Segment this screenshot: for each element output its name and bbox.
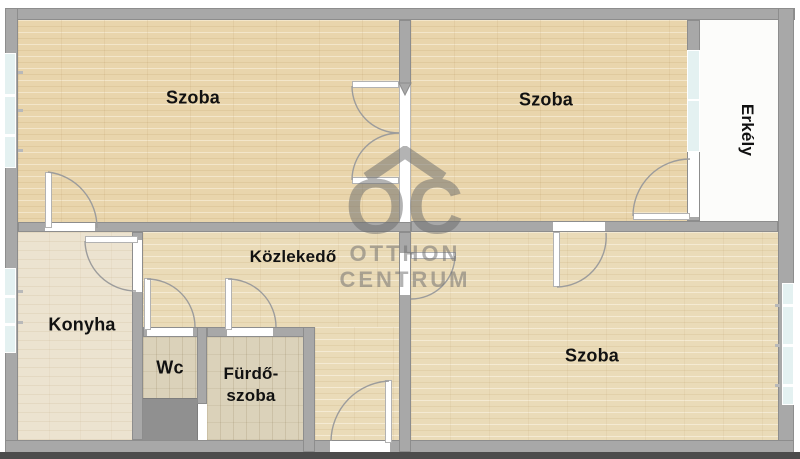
room-label-szoba-bottom: Szoba: [565, 346, 619, 367]
room-label-furdoszoba-line1: Fürdő-: [223, 364, 278, 383]
room-label-szoba-top-left: Szoba: [166, 88, 220, 109]
room-label-furdoszoba-line2: szoba: [226, 386, 275, 405]
room-label-kozlekedo: Közlekedő: [250, 247, 337, 267]
floor-plan: OC OTTHON CENTRUM Szoba Szoba Szoba Közl…: [0, 0, 800, 459]
room-label-wc: Wc: [156, 358, 183, 379]
wall-end-cap: [399, 83, 411, 95]
room-label-szoba-top-right: Szoba: [519, 90, 573, 111]
room-label-furdoszoba: Fürdő- szoba: [206, 363, 296, 407]
door-swing-arcs: [0, 0, 800, 459]
room-label-konyha: Konyha: [48, 315, 115, 336]
room-label-erkely: Erkély: [737, 104, 757, 156]
